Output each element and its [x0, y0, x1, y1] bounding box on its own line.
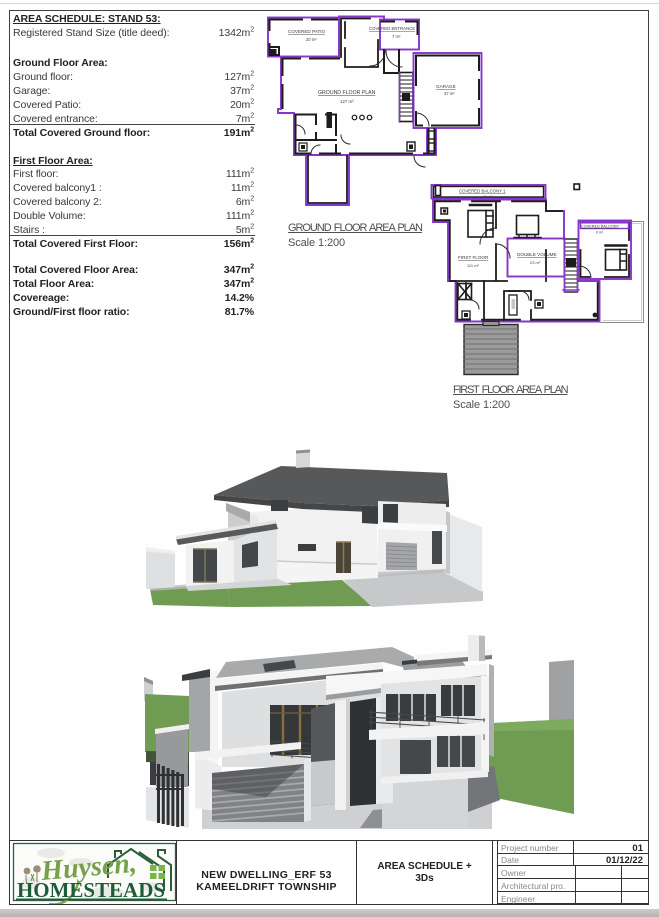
svg-text:23 m²: 23 m²	[530, 260, 541, 265]
svg-text:COVERED BALCONY: COVERED BALCONY	[581, 225, 619, 229]
svg-text:DOUBLE VOLUME: DOUBLE VOLUME	[517, 252, 557, 257]
svg-text:111 m²: 111 m²	[467, 263, 480, 268]
svg-text:GARAGE: GARAGE	[436, 84, 456, 89]
svg-text:FIRST FLOOR: FIRST FLOOR	[458, 255, 489, 260]
svg-text:GROUND FLOOR PLAN: GROUND FLOOR PLAN	[318, 90, 376, 96]
svg-text:HOMESTEADS: HOMESTEADS	[17, 878, 165, 902]
svg-text:20 m²: 20 m²	[306, 37, 317, 42]
svg-text:COVERED ENTRANCE: COVERED ENTRANCE	[369, 26, 415, 31]
svg-text:127 m²: 127 m²	[340, 99, 354, 104]
svg-text:COVERED BALCONY 1: COVERED BALCONY 1	[459, 189, 506, 194]
svg-text:11 m²: 11 m²	[483, 195, 493, 199]
svg-text:6 m²: 6 m²	[596, 231, 604, 235]
svg-text:37 m²: 37 m²	[444, 91, 455, 96]
svg-text:COVERED PATIO: COVERED PATIO	[288, 29, 326, 34]
svg-text:7 m²: 7 m²	[392, 34, 401, 39]
